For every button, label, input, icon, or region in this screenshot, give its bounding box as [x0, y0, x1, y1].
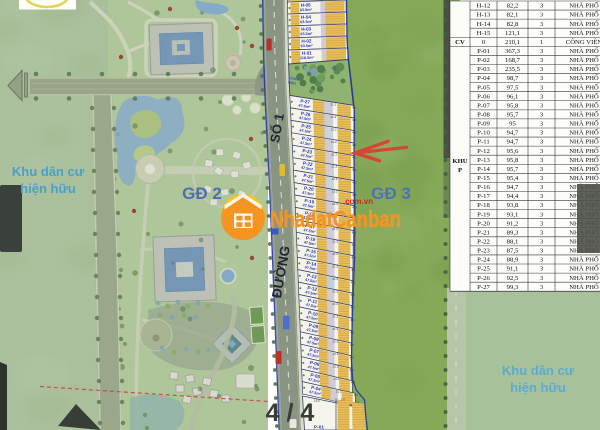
svg-text:5.0: 5.0 — [355, 400, 360, 404]
svg-text:P-25: P-25 — [477, 266, 490, 273]
svg-text:97,5: 97,5 — [507, 84, 519, 91]
svg-text:NHÀ PHỐ: NHÀ PHỐ — [569, 65, 599, 73]
svg-text:88,1: 88,1 — [507, 238, 519, 245]
svg-text:4.0: 4.0 — [350, 318, 355, 322]
svg-text:95,6: 95,6 — [507, 148, 519, 155]
svg-text:21.2: 21.2 — [331, 152, 337, 156]
svg-text:P-10: P-10 — [477, 130, 490, 137]
svg-text:94,4: 94,4 — [507, 193, 519, 200]
svg-text:63.5m²: 63.5m² — [300, 20, 313, 24]
svg-text:GĐ 2: GĐ 2 — [182, 184, 222, 203]
svg-text:P: P — [458, 167, 462, 174]
svg-text:P-09: P-09 — [477, 121, 490, 128]
svg-text:P-23: P-23 — [477, 248, 490, 255]
svg-text:P-07: P-07 — [477, 102, 490, 109]
svg-text:95,7: 95,7 — [507, 112, 519, 119]
svg-text:Khu dân cư: Khu dân cư — [502, 363, 575, 378]
svg-text:21.2: 21.2 — [332, 177, 338, 181]
svg-text:63.5m²: 63.5m² — [301, 44, 314, 48]
svg-text:P-19: P-19 — [477, 211, 490, 218]
svg-text:4.0: 4.0 — [351, 381, 356, 385]
svg-text:4.0: 4.0 — [352, 130, 357, 134]
svg-text:21.2: 21.2 — [331, 127, 337, 131]
svg-text:87,5: 87,5 — [507, 248, 519, 255]
svg-text:P-22: P-22 — [477, 238, 490, 245]
svg-text:NHÀ PHỐ: NHÀ PHỐ — [569, 165, 599, 173]
svg-text:P-06: P-06 — [477, 93, 490, 100]
svg-text:P-04: P-04 — [477, 75, 490, 82]
svg-text:4.0: 4.0 — [354, 393, 359, 397]
svg-text:P-26: P-26 — [477, 275, 490, 282]
svg-text:NHÀ PHỐ: NHÀ PHỐ — [569, 47, 599, 55]
svg-text:CÔNG VIÊN: CÔNG VIÊN — [566, 38, 600, 46]
svg-text:21.2: 21.2 — [331, 165, 337, 169]
svg-text:15.0: 15.0 — [314, 399, 320, 403]
svg-text:P-02: P-02 — [477, 57, 490, 64]
svg-text:NHÀ PHỐ: NHÀ PHỐ — [569, 129, 599, 137]
svg-text:4.0: 4.0 — [351, 281, 356, 285]
svg-text:NHÀ PHỐ: NHÀ PHỐ — [569, 274, 599, 282]
svg-text:21.2: 21.2 — [333, 365, 339, 369]
svg-text:121,1: 121,1 — [505, 30, 520, 37]
svg-text:NHÀ PHỐ: NHÀ PHỐ — [569, 120, 599, 128]
svg-text:P-24: P-24 — [477, 257, 490, 264]
svg-text:P-21: P-21 — [477, 229, 490, 236]
svg-text:4.0: 4.0 — [352, 143, 357, 147]
svg-text:21.2: 21.2 — [332, 315, 338, 319]
svg-text:P-11: P-11 — [477, 139, 489, 146]
svg-text:NHÀ PHỐ: NHÀ PHỐ — [569, 101, 599, 109]
svg-text:P-14: P-14 — [477, 166, 490, 173]
svg-text:NHÀ PHỐ: NHÀ PHỐ — [569, 256, 599, 264]
svg-text:4.0: 4.0 — [351, 256, 356, 260]
svg-text:21.2: 21.2 — [332, 240, 338, 244]
svg-text:4.0: 4.0 — [352, 168, 357, 172]
svg-text:H-14: H-14 — [477, 21, 491, 28]
svg-text:21.2: 21.2 — [333, 352, 339, 356]
svg-text:99,3: 99,3 — [507, 284, 519, 291]
svg-text:4.0: 4.0 — [352, 118, 357, 122]
svg-text:4.0: 4.0 — [350, 368, 355, 372]
svg-text:P-20: P-20 — [477, 220, 490, 227]
svg-text:82,2: 82,2 — [507, 3, 519, 10]
svg-text:94,7: 94,7 — [507, 184, 519, 191]
svg-text:NHÀ PHỐ: NHÀ PHỐ — [569, 20, 599, 28]
svg-text:NHÀ PHỐ: NHÀ PHỐ — [569, 174, 599, 182]
svg-text:1: 1 — [540, 39, 543, 46]
svg-text:4.0: 4.0 — [350, 331, 355, 335]
svg-text:210,1: 210,1 — [505, 39, 520, 46]
svg-text:P-17: P-17 — [477, 193, 490, 200]
svg-text:4.0: 4.0 — [351, 293, 356, 297]
svg-text:NhadatCanban: NhadatCanban — [270, 206, 401, 232]
svg-text:NHÀ PHỐ: NHÀ PHỐ — [569, 92, 599, 100]
svg-text:NHÀ PHỐ: NHÀ PHỐ — [569, 56, 599, 64]
svg-text:4.0: 4.0 — [352, 181, 357, 185]
svg-text:P-08: P-08 — [477, 112, 490, 119]
svg-text:93,1: 93,1 — [507, 211, 519, 218]
svg-text:H-12: H-12 — [477, 3, 491, 10]
svg-text:21.2: 21.2 — [332, 252, 338, 256]
svg-text:94,7: 94,7 — [507, 139, 519, 146]
svg-text:21.2: 21.2 — [334, 377, 340, 381]
svg-text:91,2: 91,2 — [507, 220, 519, 227]
svg-text:Khu dân cư: Khu dân cư — [12, 164, 85, 179]
svg-text:P-05: P-05 — [477, 84, 490, 91]
svg-text:88,9: 88,9 — [507, 257, 519, 264]
svg-text:82,8: 82,8 — [507, 21, 519, 28]
svg-text:96,1: 96,1 — [507, 93, 519, 100]
svg-text:.com.vn: .com.vn — [343, 197, 373, 206]
svg-text:118.5m²: 118.5m² — [300, 56, 315, 60]
svg-text:NHÀ PHỐ: NHÀ PHỐ — [569, 11, 599, 19]
svg-text:95,8: 95,8 — [507, 157, 519, 164]
svg-text:21.2: 21.2 — [331, 140, 337, 144]
svg-text:21.2: 21.2 — [331, 115, 337, 119]
svg-text:NHÀ PHỐ: NHÀ PHỐ — [569, 156, 599, 164]
svg-text:CV: CV — [455, 39, 465, 46]
svg-text:21.2: 21.2 — [332, 265, 338, 269]
svg-text:NHÀ PHỐ: NHÀ PHỐ — [569, 111, 599, 119]
svg-text:95,4: 95,4 — [507, 175, 519, 182]
svg-text:21.2: 21.2 — [332, 327, 338, 331]
svg-text:5.0: 5.0 — [341, 398, 346, 402]
svg-text:95,8: 95,8 — [507, 102, 519, 109]
svg-text:hiện hữu: hiện hữu — [510, 380, 566, 395]
svg-text:95,7: 95,7 — [507, 166, 519, 173]
svg-text:95: 95 — [509, 121, 516, 128]
svg-text:89,3: 89,3 — [507, 229, 519, 236]
svg-text:63.5m²: 63.5m² — [300, 8, 313, 12]
svg-text:P-18: P-18 — [477, 202, 490, 209]
svg-text:4.0: 4.0 — [352, 155, 357, 159]
svg-text:NHÀ PHỐ: NHÀ PHỐ — [569, 83, 599, 91]
svg-text:4.0: 4.0 — [352, 105, 357, 109]
svg-text:P-03: P-03 — [477, 66, 490, 73]
svg-text:KHU: KHU — [452, 158, 467, 165]
svg-text:4.0: 4.0 — [351, 268, 356, 272]
svg-text:NHÀ PHỐ: NHÀ PHỐ — [569, 147, 599, 155]
svg-text:21.2: 21.2 — [332, 302, 338, 306]
svg-text:21.2: 21.2 — [336, 390, 342, 394]
svg-text:63.5m²: 63.5m² — [300, 32, 313, 36]
svg-text:NHÀ PHỐ: NHÀ PHỐ — [569, 138, 599, 146]
svg-text:94,7: 94,7 — [507, 130, 519, 137]
svg-text:NHÀ PHỐ: NHÀ PHỐ — [569, 74, 599, 82]
svg-text:92,5: 92,5 — [507, 275, 519, 282]
svg-text:91,1: 91,1 — [507, 266, 519, 273]
svg-text:82,1: 82,1 — [507, 12, 519, 19]
svg-text:21.2: 21.2 — [330, 102, 336, 106]
svg-text:H-15: H-15 — [477, 30, 491, 37]
svg-text:P-12: P-12 — [477, 148, 490, 155]
svg-text:H-13: H-13 — [477, 12, 491, 19]
svg-text:21.2: 21.2 — [332, 277, 338, 281]
svg-text:4.0: 4.0 — [352, 243, 357, 247]
svg-text:367,3: 367,3 — [505, 48, 521, 55]
svg-text:P-16: P-16 — [477, 184, 490, 191]
svg-text:P-13: P-13 — [477, 157, 490, 164]
svg-text:235,5: 235,5 — [505, 66, 521, 73]
svg-text:168,7: 168,7 — [505, 57, 521, 64]
svg-text:4.0: 4.0 — [350, 343, 355, 347]
svg-text:4.0: 4.0 — [350, 356, 355, 360]
svg-text:4.0: 4.0 — [350, 306, 355, 310]
svg-text:P-01: P-01 — [314, 425, 324, 430]
svg-text:93,8: 93,8 — [507, 202, 519, 209]
svg-text:hiện hữu: hiện hữu — [20, 181, 76, 196]
svg-text:21.2: 21.2 — [332, 190, 338, 194]
svg-text:P-01: P-01 — [477, 48, 490, 55]
svg-text:21.2: 21.2 — [333, 340, 339, 344]
svg-text:NHÀ PHỐ: NHÀ PHỐ — [569, 283, 599, 291]
svg-text:P-27: P-27 — [477, 284, 490, 291]
svg-text:98,7: 98,7 — [507, 75, 519, 82]
svg-text:NHÀ PHỐ: NHÀ PHỐ — [569, 29, 599, 37]
svg-text:GĐ 3: GĐ 3 — [371, 184, 411, 203]
svg-text:P-15: P-15 — [477, 175, 490, 182]
svg-text:21.2: 21.2 — [332, 290, 338, 294]
svg-text:NHÀ PHỐ: NHÀ PHỐ — [569, 2, 599, 10]
svg-text:NHÀ PHỐ: NHÀ PHỐ — [569, 265, 599, 273]
